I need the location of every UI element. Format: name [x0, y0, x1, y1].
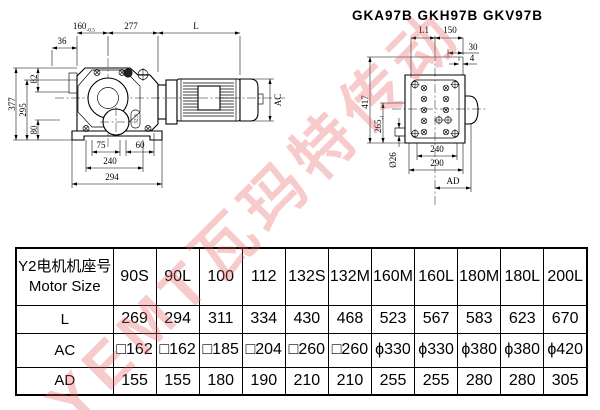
dim-290: 290: [430, 158, 444, 168]
dim-60: 60: [136, 140, 146, 150]
table-cell: 255: [415, 367, 458, 395]
table-cell: 670: [544, 305, 587, 333]
column-header: 160M: [371, 248, 414, 305]
catalog-page: 32.3 160-0.5 277 L 36: [0, 0, 600, 410]
table-cell: 155: [156, 367, 199, 395]
dim-AD: AD: [447, 176, 460, 186]
table-cell: 334: [242, 305, 285, 333]
dim-36: 36: [58, 36, 68, 46]
table-cell: □185: [199, 333, 242, 367]
column-header: 90S: [113, 248, 156, 305]
column-header: 180L: [501, 248, 544, 305]
dim-160: 160-0.5: [73, 21, 95, 34]
table-cell: 583: [458, 305, 501, 333]
gearbox-side-view: 32.3: [55, 58, 285, 148]
table-row: AD155155180190210210255255280280305: [16, 367, 587, 395]
table-cell: 180: [199, 367, 242, 395]
dim-377: 377: [7, 97, 17, 111]
table-cell: 523: [371, 305, 414, 333]
gearbox-front-view: [392, 52, 488, 205]
motor-size-header: Y2电机机座号Motor Size: [16, 248, 113, 305]
motor-size-header-cn: Y2电机机座号: [17, 257, 113, 277]
table-cell: □260: [285, 333, 328, 367]
row-label: L: [16, 305, 113, 333]
table-cell: □204: [242, 333, 285, 367]
table-cell: □162: [156, 333, 199, 367]
left-drawing: 32.3 160-0.5 277 L 36: [0, 0, 340, 245]
column-header: 100: [199, 248, 242, 305]
table-cell: 567: [415, 305, 458, 333]
dim-L1: L1: [419, 25, 429, 35]
table-row: AC□162□162□185□204□260□260ϕ330ϕ330ϕ380ϕ3…: [16, 333, 587, 367]
breather-plug-icon: [124, 69, 132, 77]
spec-table: Y2电机机座号Motor Size90S90L100112132S132M160…: [15, 247, 588, 396]
table-cell: 269: [113, 305, 156, 333]
table-header-row: Y2电机机座号Motor Size90S90L100112132S132M160…: [16, 248, 587, 305]
table-cell: 280: [458, 367, 501, 395]
table-cell: 190: [242, 367, 285, 395]
column-header: 112: [242, 248, 285, 305]
table-cell: 155: [113, 367, 156, 395]
motor-size-header-en: Motor Size: [17, 277, 113, 297]
column-header: 200L: [544, 248, 587, 305]
table-cell: □260: [328, 333, 371, 367]
dim-294: 294: [105, 172, 119, 182]
table-cell: 255: [371, 367, 414, 395]
dim-265: 265-1: [373, 115, 386, 133]
dim-80: 80: [29, 125, 39, 135]
table-cell: 305: [544, 367, 587, 395]
dim-277: 277: [124, 21, 138, 31]
table-cell: 623: [501, 305, 544, 333]
table-cell: ϕ380: [501, 333, 544, 367]
table-cell: 294: [156, 305, 199, 333]
column-header: 180M: [458, 248, 501, 305]
dim-82: 82: [29, 75, 39, 84]
table-cell: ϕ380: [458, 333, 501, 367]
dim-240b: 240: [430, 144, 444, 154]
dim-32-3: 32.3: [134, 114, 140, 124]
column-header: 132M: [328, 248, 371, 305]
table-cell: 210: [285, 367, 328, 395]
table-cell: ϕ330: [415, 333, 458, 367]
table-cell: 468: [328, 305, 371, 333]
dim-150: 150: [443, 25, 457, 35]
dim-417: 417: [360, 95, 370, 109]
table-cell: 311: [199, 305, 242, 333]
right-drawing: L1 150 30 4 417 265-1 Ø26 240 290 AD: [340, 0, 600, 245]
table-cell: ϕ330: [371, 333, 414, 367]
column-header: 160L: [415, 248, 458, 305]
drawing-title: GKA97B GKH97B GKV97B: [352, 8, 572, 23]
dim-4: 4: [470, 53, 475, 63]
table-cell: ϕ420: [544, 333, 587, 367]
table-cell: 210: [328, 367, 371, 395]
table-row: L269294311334430468523567583623670: [16, 305, 587, 333]
table-cell: 280: [501, 367, 544, 395]
table-cell: 430: [285, 305, 328, 333]
dim-dia26: Ø26: [388, 152, 398, 168]
dim-L: L: [193, 21, 199, 31]
table-cell: □162: [113, 333, 156, 367]
row-label: AD: [16, 367, 113, 395]
dim-240: 240: [103, 156, 117, 166]
column-header: 132S: [285, 248, 328, 305]
dim-295: 295: [18, 103, 28, 117]
spec-table-body: Y2电机机座号Motor Size90S90L100112132S132M160…: [16, 248, 587, 395]
dim-75: 75: [97, 140, 107, 150]
dim-30: 30: [469, 42, 479, 52]
column-header: 90L: [156, 248, 199, 305]
row-label: AC: [16, 333, 113, 367]
dim-AC: AC: [273, 94, 283, 107]
